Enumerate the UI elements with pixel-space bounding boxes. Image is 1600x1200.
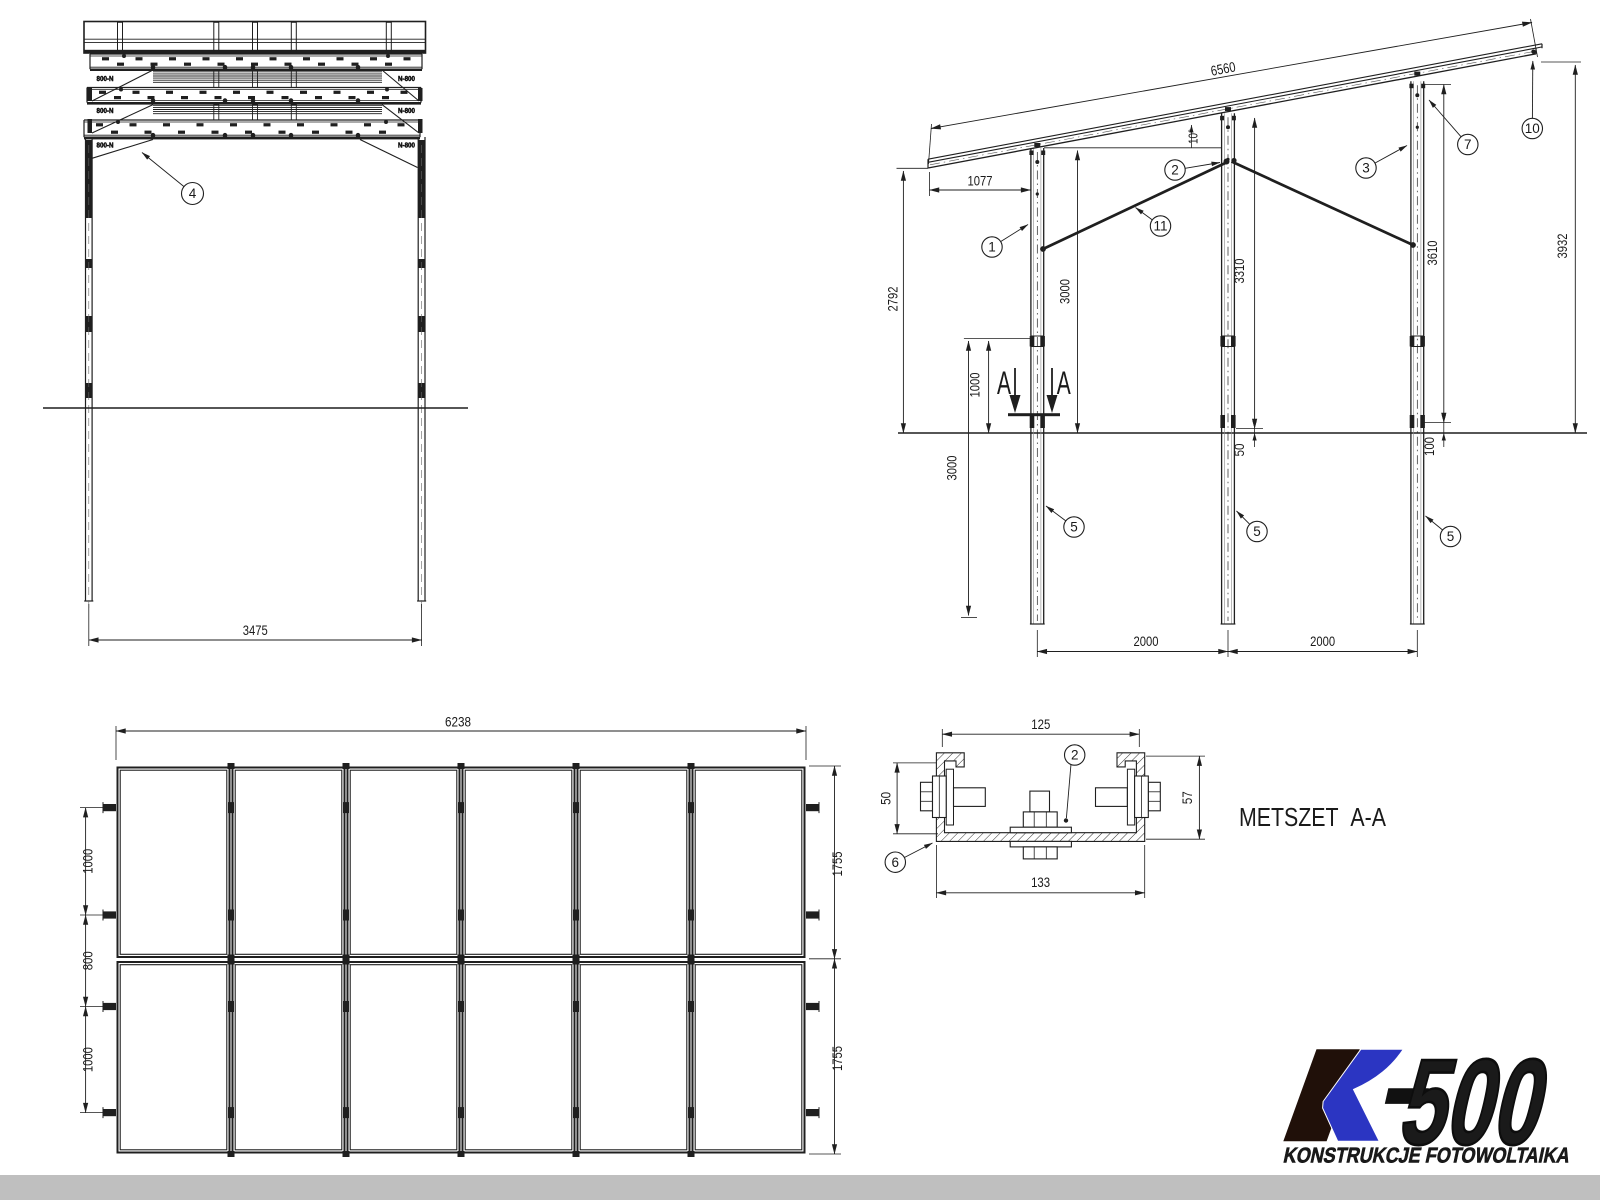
svg-text:5: 5 <box>1070 520 1078 535</box>
svg-text:6: 6 <box>892 855 900 870</box>
svg-text:3932: 3932 <box>1554 233 1570 258</box>
svg-text:11: 11 <box>1153 219 1167 234</box>
svg-text:6238: 6238 <box>445 714 471 730</box>
svg-text:3000: 3000 <box>943 455 959 480</box>
svg-text:4: 4 <box>189 186 197 201</box>
svg-text:2: 2 <box>1071 748 1079 763</box>
svg-text:1: 1 <box>988 240 996 255</box>
svg-text:N-800: N-800 <box>398 74 415 83</box>
svg-text:3310: 3310 <box>1231 258 1247 283</box>
svg-text:3: 3 <box>1362 161 1370 176</box>
svg-text:3475: 3475 <box>243 622 268 638</box>
svg-text:5: 5 <box>1447 529 1455 544</box>
svg-text:10°: 10° <box>1187 129 1201 144</box>
svg-text:2: 2 <box>1171 163 1179 178</box>
svg-text:800: 800 <box>79 951 95 970</box>
svg-text:100: 100 <box>1421 437 1437 456</box>
svg-text:A: A <box>997 365 1011 401</box>
svg-text:1755: 1755 <box>829 851 845 876</box>
svg-text:50: 50 <box>1231 443 1247 456</box>
svg-text:1755: 1755 <box>829 1046 845 1071</box>
svg-text:A: A <box>1057 365 1071 401</box>
svg-text:125: 125 <box>1031 716 1050 732</box>
svg-text:10: 10 <box>1525 121 1540 136</box>
svg-text:5: 5 <box>1253 524 1261 539</box>
svg-text:3610: 3610 <box>1424 240 1440 265</box>
svg-text:1000: 1000 <box>79 849 95 874</box>
svg-text:800-N: 800-N <box>97 140 114 149</box>
svg-text:1000: 1000 <box>79 1047 95 1072</box>
svg-text:N-800: N-800 <box>398 106 415 115</box>
svg-text:2000: 2000 <box>1134 633 1159 649</box>
svg-text:800-N: 800-N <box>97 74 114 83</box>
svg-text:3000: 3000 <box>1056 279 1072 304</box>
svg-text:N-800: N-800 <box>398 140 415 149</box>
svg-text:2792: 2792 <box>885 286 901 311</box>
svg-text:METSZET A-A: METSZET A-A <box>1239 802 1387 832</box>
svg-text:1077: 1077 <box>968 173 993 189</box>
svg-text:7: 7 <box>1464 137 1472 152</box>
svg-text:2000: 2000 <box>1310 633 1335 649</box>
svg-text:133: 133 <box>1031 874 1050 890</box>
svg-text:57: 57 <box>1179 791 1195 804</box>
svg-text:800-N: 800-N <box>97 106 114 115</box>
svg-text:50: 50 <box>877 792 893 805</box>
svg-text:KONSTRUKCJE FOTOWOLTAIKA: KONSTRUKCJE FOTOWOLTAIKA <box>1281 1143 1572 1168</box>
